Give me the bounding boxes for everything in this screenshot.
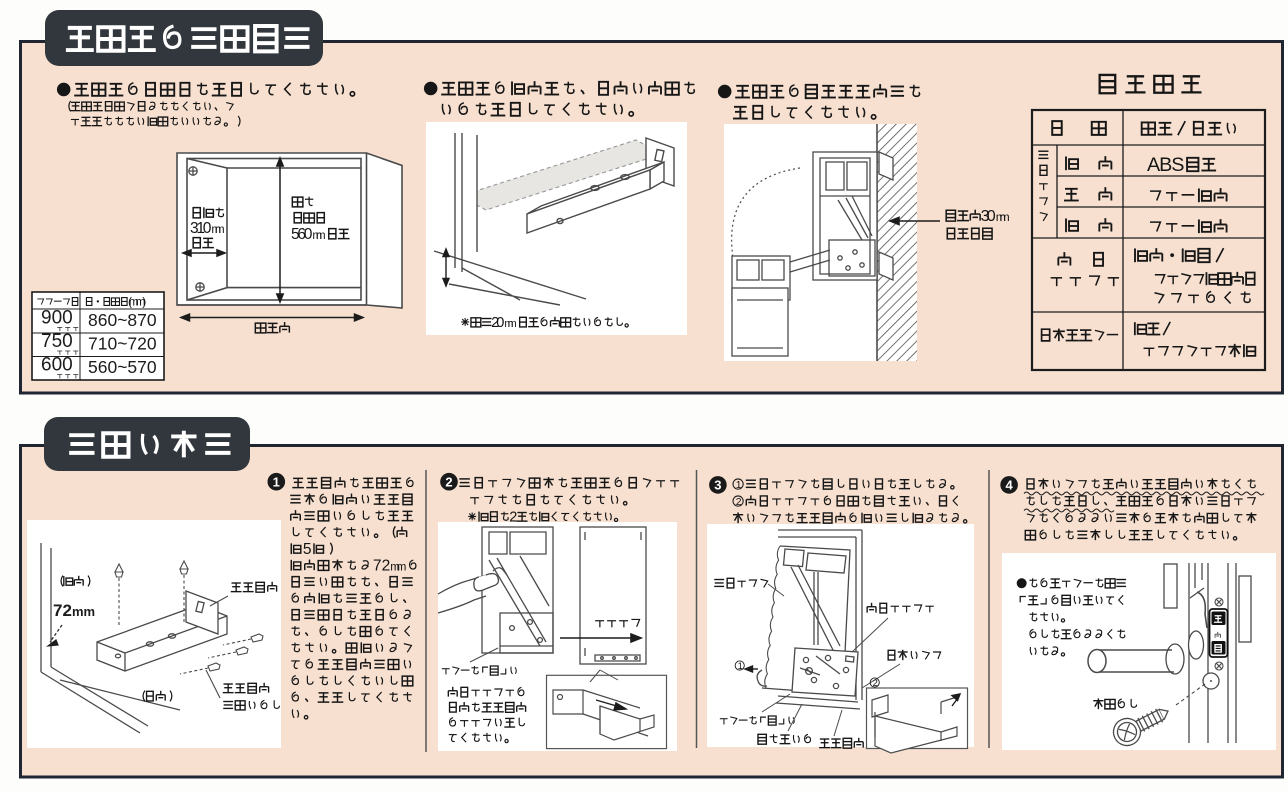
svg-text:20: 20	[491, 315, 504, 331]
svg-text:2: 2	[873, 677, 878, 688]
svg-text:1: 1	[736, 480, 742, 491]
svg-text:mm: mm	[211, 223, 224, 236]
svg-text:750: 750	[41, 331, 73, 352]
svg-text:72: 72	[53, 601, 72, 620]
svg-text:560: 560	[291, 226, 313, 243]
svg-text:(mm): (mm)	[128, 295, 146, 309]
svg-text:900: 900	[41, 308, 73, 329]
svg-text:310: 310	[190, 220, 212, 237]
svg-text:2: 2	[736, 497, 742, 508]
svg-text:mm: mm	[312, 229, 325, 242]
svg-text:30: 30	[981, 207, 996, 225]
svg-text:mm: mm	[72, 604, 95, 619]
svg-text:860~870: 860~870	[88, 310, 157, 330]
svg-text:ABS: ABS	[1147, 154, 1184, 176]
svg-text:2: 2	[445, 474, 452, 489]
svg-text:1: 1	[738, 660, 743, 671]
svg-text:mm: mm	[390, 561, 406, 574]
svg-text:1: 1	[273, 474, 280, 489]
svg-text:mm: mm	[504, 318, 516, 330]
svg-text:710~720: 710~720	[88, 334, 157, 354]
svg-text:600: 600	[41, 355, 73, 376]
svg-text:72: 72	[373, 558, 390, 575]
svg-text:560~570: 560~570	[88, 357, 157, 377]
svg-text:5: 5	[303, 541, 312, 558]
svg-text:3: 3	[714, 478, 721, 493]
svg-text:4: 4	[1005, 478, 1013, 493]
svg-text:mm: mm	[996, 210, 1010, 224]
